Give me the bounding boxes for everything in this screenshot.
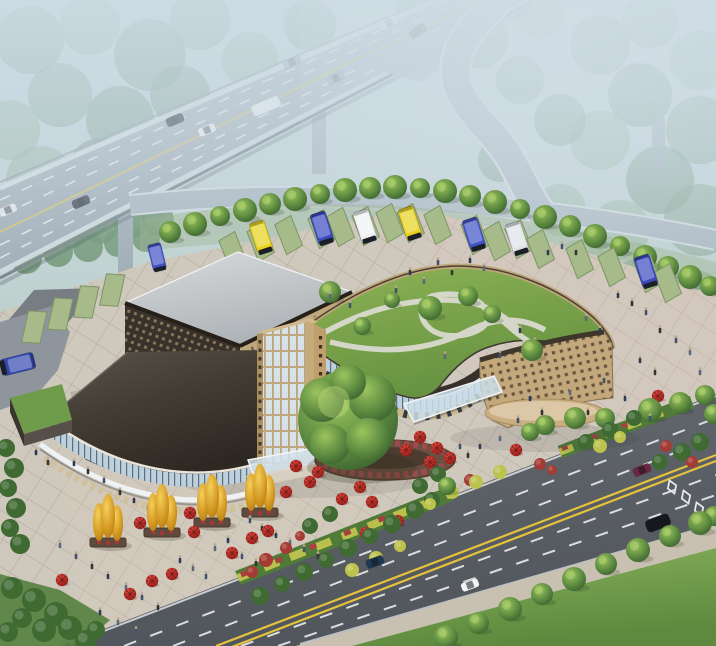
pedestrian (91, 561, 94, 569)
bush (322, 506, 338, 522)
bush (394, 540, 406, 552)
pedestrian (349, 300, 352, 308)
pedestrian (659, 325, 662, 333)
bush (280, 542, 292, 554)
pedestrian (59, 540, 62, 548)
pedestrian (395, 285, 398, 293)
bush (406, 501, 424, 519)
rendering-canvas (0, 0, 716, 646)
pedestrian (479, 441, 482, 449)
pedestrian (47, 457, 50, 465)
pedestrian (205, 571, 208, 579)
pedestrian (241, 551, 244, 559)
pedestrian (649, 413, 652, 421)
pedestrian (119, 487, 122, 495)
bush (259, 553, 273, 567)
pedestrian (689, 347, 692, 355)
pedestrian (329, 291, 332, 299)
bush (318, 552, 334, 568)
bush (1, 519, 19, 537)
pedestrian (459, 441, 462, 449)
pedestrian (87, 466, 90, 474)
bush (302, 518, 318, 534)
bush (660, 440, 672, 452)
pedestrian (603, 375, 606, 383)
bush (534, 458, 546, 470)
pedestrian (561, 241, 564, 249)
pedestrian (227, 535, 230, 543)
pedestrian (103, 475, 106, 483)
bush (412, 478, 428, 494)
pedestrian (35, 447, 38, 455)
bush (593, 439, 607, 453)
bush (614, 431, 626, 443)
pedestrian (469, 255, 472, 263)
bush (362, 528, 378, 544)
pedestrian (517, 415, 520, 423)
bush (652, 454, 668, 470)
pedestrian (303, 544, 306, 552)
pedestrian (73, 458, 76, 466)
pedestrian (423, 276, 426, 284)
pedestrian (255, 558, 258, 566)
bush (691, 433, 709, 451)
pedestrian (585, 313, 588, 321)
pedestrian (141, 592, 144, 600)
bush (626, 410, 642, 426)
pedestrian (639, 355, 642, 363)
bush (274, 576, 290, 592)
bush (383, 515, 401, 533)
pedestrian (499, 433, 502, 441)
bush (345, 563, 359, 577)
pedestrian (519, 325, 522, 333)
bush (295, 563, 313, 581)
pedestrian (214, 543, 217, 551)
pedestrian (654, 367, 657, 375)
pedestrian (467, 450, 470, 458)
bush (4, 458, 24, 478)
pedestrian (437, 257, 440, 265)
pedestrian (529, 393, 532, 401)
bush (469, 475, 483, 489)
pedestrian (675, 335, 678, 343)
pedestrian (135, 626, 138, 634)
scene-rendering (0, 0, 716, 646)
pedestrian (575, 247, 578, 255)
pedestrian (541, 407, 544, 415)
bush (32, 618, 56, 642)
pedestrian (157, 602, 160, 610)
bush (251, 587, 269, 605)
bush (6, 498, 26, 518)
pedestrian (617, 290, 620, 298)
pedestrian (409, 267, 412, 275)
bush (295, 531, 305, 541)
pedestrian (624, 393, 627, 401)
bush (686, 456, 698, 468)
pedestrian (444, 351, 447, 359)
pedestrian (699, 367, 702, 375)
bush (1, 577, 23, 599)
pedestrian (75, 551, 78, 559)
pedestrian (179, 555, 182, 563)
pedestrian (275, 530, 278, 538)
pedestrian (547, 247, 550, 255)
bush (547, 465, 557, 475)
pedestrian (599, 325, 602, 333)
bush (246, 566, 258, 578)
pedestrian (133, 495, 136, 503)
pedestrian (451, 267, 454, 275)
bush (424, 498, 436, 510)
pedestrian (483, 263, 486, 271)
bush (493, 465, 507, 479)
pedestrian (192, 563, 195, 571)
bush (10, 534, 30, 554)
bush (339, 539, 357, 557)
pedestrian (587, 407, 590, 415)
pedestrian (117, 617, 120, 625)
pedestrian (631, 298, 634, 306)
pedestrian (499, 350, 502, 358)
pedestrian (645, 307, 648, 315)
bush (22, 588, 46, 612)
pedestrian (107, 571, 110, 579)
pedestrian (569, 387, 572, 395)
pedestrian (99, 607, 102, 615)
bush (578, 434, 594, 450)
pedestrian (249, 515, 252, 523)
